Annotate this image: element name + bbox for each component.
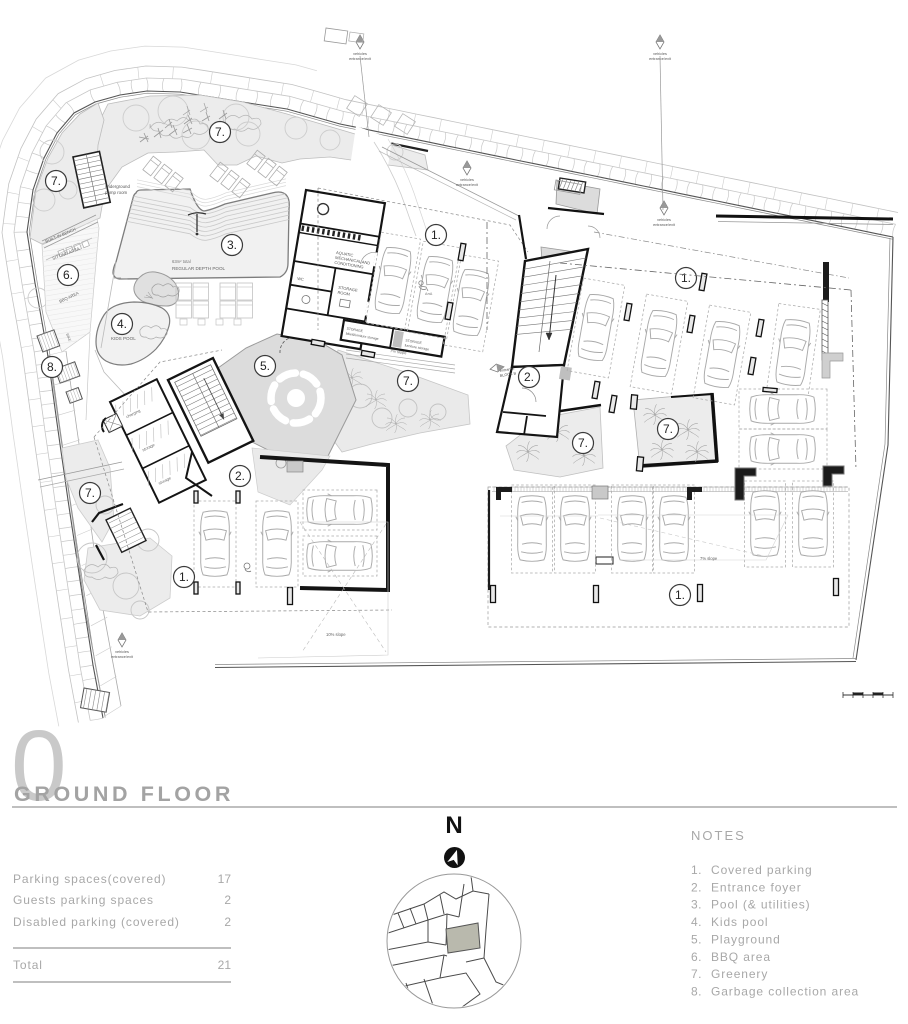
svg-text:BBQ area: BBQ area: [711, 950, 771, 964]
svg-text:5.: 5.: [691, 932, 702, 946]
svg-text:REGULAR DEPTH POOL: REGULAR DEPTH POOL: [172, 266, 226, 271]
svg-text:8.: 8.: [691, 984, 702, 998]
svg-text:63m² total: 63m² total: [172, 259, 191, 264]
svg-text:7.: 7.: [691, 967, 702, 981]
svg-text:vehicles: vehicles: [657, 218, 671, 222]
svg-text:4.: 4.: [117, 317, 127, 331]
svg-text:1.: 1.: [431, 228, 441, 242]
svg-text:AπA: AπA: [425, 292, 433, 296]
svg-text:NOTES: NOTES: [691, 828, 746, 843]
svg-text:6.: 6.: [691, 950, 702, 964]
svg-text:Parking spaces(covered): Parking spaces(covered): [13, 872, 166, 886]
svg-text:7.: 7.: [663, 422, 673, 436]
svg-text:4.: 4.: [691, 915, 702, 929]
svg-text:underground: underground: [105, 184, 130, 189]
svg-text:1.: 1.: [675, 588, 685, 602]
svg-text:2: 2: [224, 893, 231, 907]
svg-text:entrance/exit: entrance/exit: [111, 655, 134, 659]
svg-text:2.: 2.: [524, 370, 534, 384]
svg-text:KIDS POOL: KIDS POOL: [111, 336, 136, 341]
svg-text:3.: 3.: [691, 898, 702, 912]
svg-text:Total: Total: [13, 958, 43, 972]
svg-text:5.: 5.: [260, 359, 270, 373]
svg-text:entrance/exit: entrance/exit: [653, 223, 676, 227]
svg-text:Garbage collection area: Garbage collection area: [711, 984, 859, 998]
svg-text:2: 2: [224, 915, 231, 929]
svg-text:3.: 3.: [227, 238, 237, 252]
svg-text:Kids pool: Kids pool: [711, 915, 768, 929]
svg-text:7% slope: 7% slope: [700, 556, 718, 561]
svg-text:6.: 6.: [63, 268, 73, 282]
svg-text:17: 17: [218, 872, 232, 886]
svg-text:Entrance foyer: Entrance foyer: [711, 880, 802, 894]
svg-text:vehicles: vehicles: [653, 52, 667, 56]
svg-text:7.: 7.: [51, 174, 61, 188]
svg-text:8.: 8.: [47, 360, 57, 374]
svg-text:1.: 1.: [179, 570, 189, 584]
svg-text:7.: 7.: [578, 436, 588, 450]
svg-text:Playground: Playground: [711, 932, 781, 946]
svg-text:1.: 1.: [681, 271, 691, 285]
svg-text:7.: 7.: [403, 374, 413, 388]
svg-text:7.: 7.: [85, 486, 95, 500]
svg-text:vehicles: vehicles: [460, 178, 474, 182]
svg-text:Greenery: Greenery: [711, 967, 768, 981]
svg-text:pump room: pump room: [105, 190, 128, 195]
svg-text:2.: 2.: [235, 469, 245, 483]
svg-text:Disabled parking (covered): Disabled parking (covered): [13, 915, 180, 929]
svg-text:21: 21: [218, 958, 232, 972]
svg-text:1.: 1.: [691, 863, 702, 877]
svg-text:N: N: [445, 812, 462, 839]
svg-text:entrance/exit: entrance/exit: [456, 183, 479, 187]
svg-text:vehicles: vehicles: [353, 52, 367, 56]
svg-text:vehicles: vehicles: [115, 650, 129, 654]
svg-text:Pool (& utilities): Pool (& utilities): [711, 898, 811, 912]
svg-text:2.: 2.: [691, 880, 702, 894]
svg-text:entrance/exit: entrance/exit: [649, 57, 672, 61]
svg-text:Covered parking: Covered parking: [711, 863, 813, 877]
svg-text:7.: 7.: [215, 125, 225, 139]
svg-text:10% slope: 10% slope: [326, 632, 346, 637]
svg-text:Guests parking spaces: Guests parking spaces: [13, 893, 154, 907]
svg-text:GROUND FLOOR: GROUND FLOOR: [14, 782, 234, 806]
